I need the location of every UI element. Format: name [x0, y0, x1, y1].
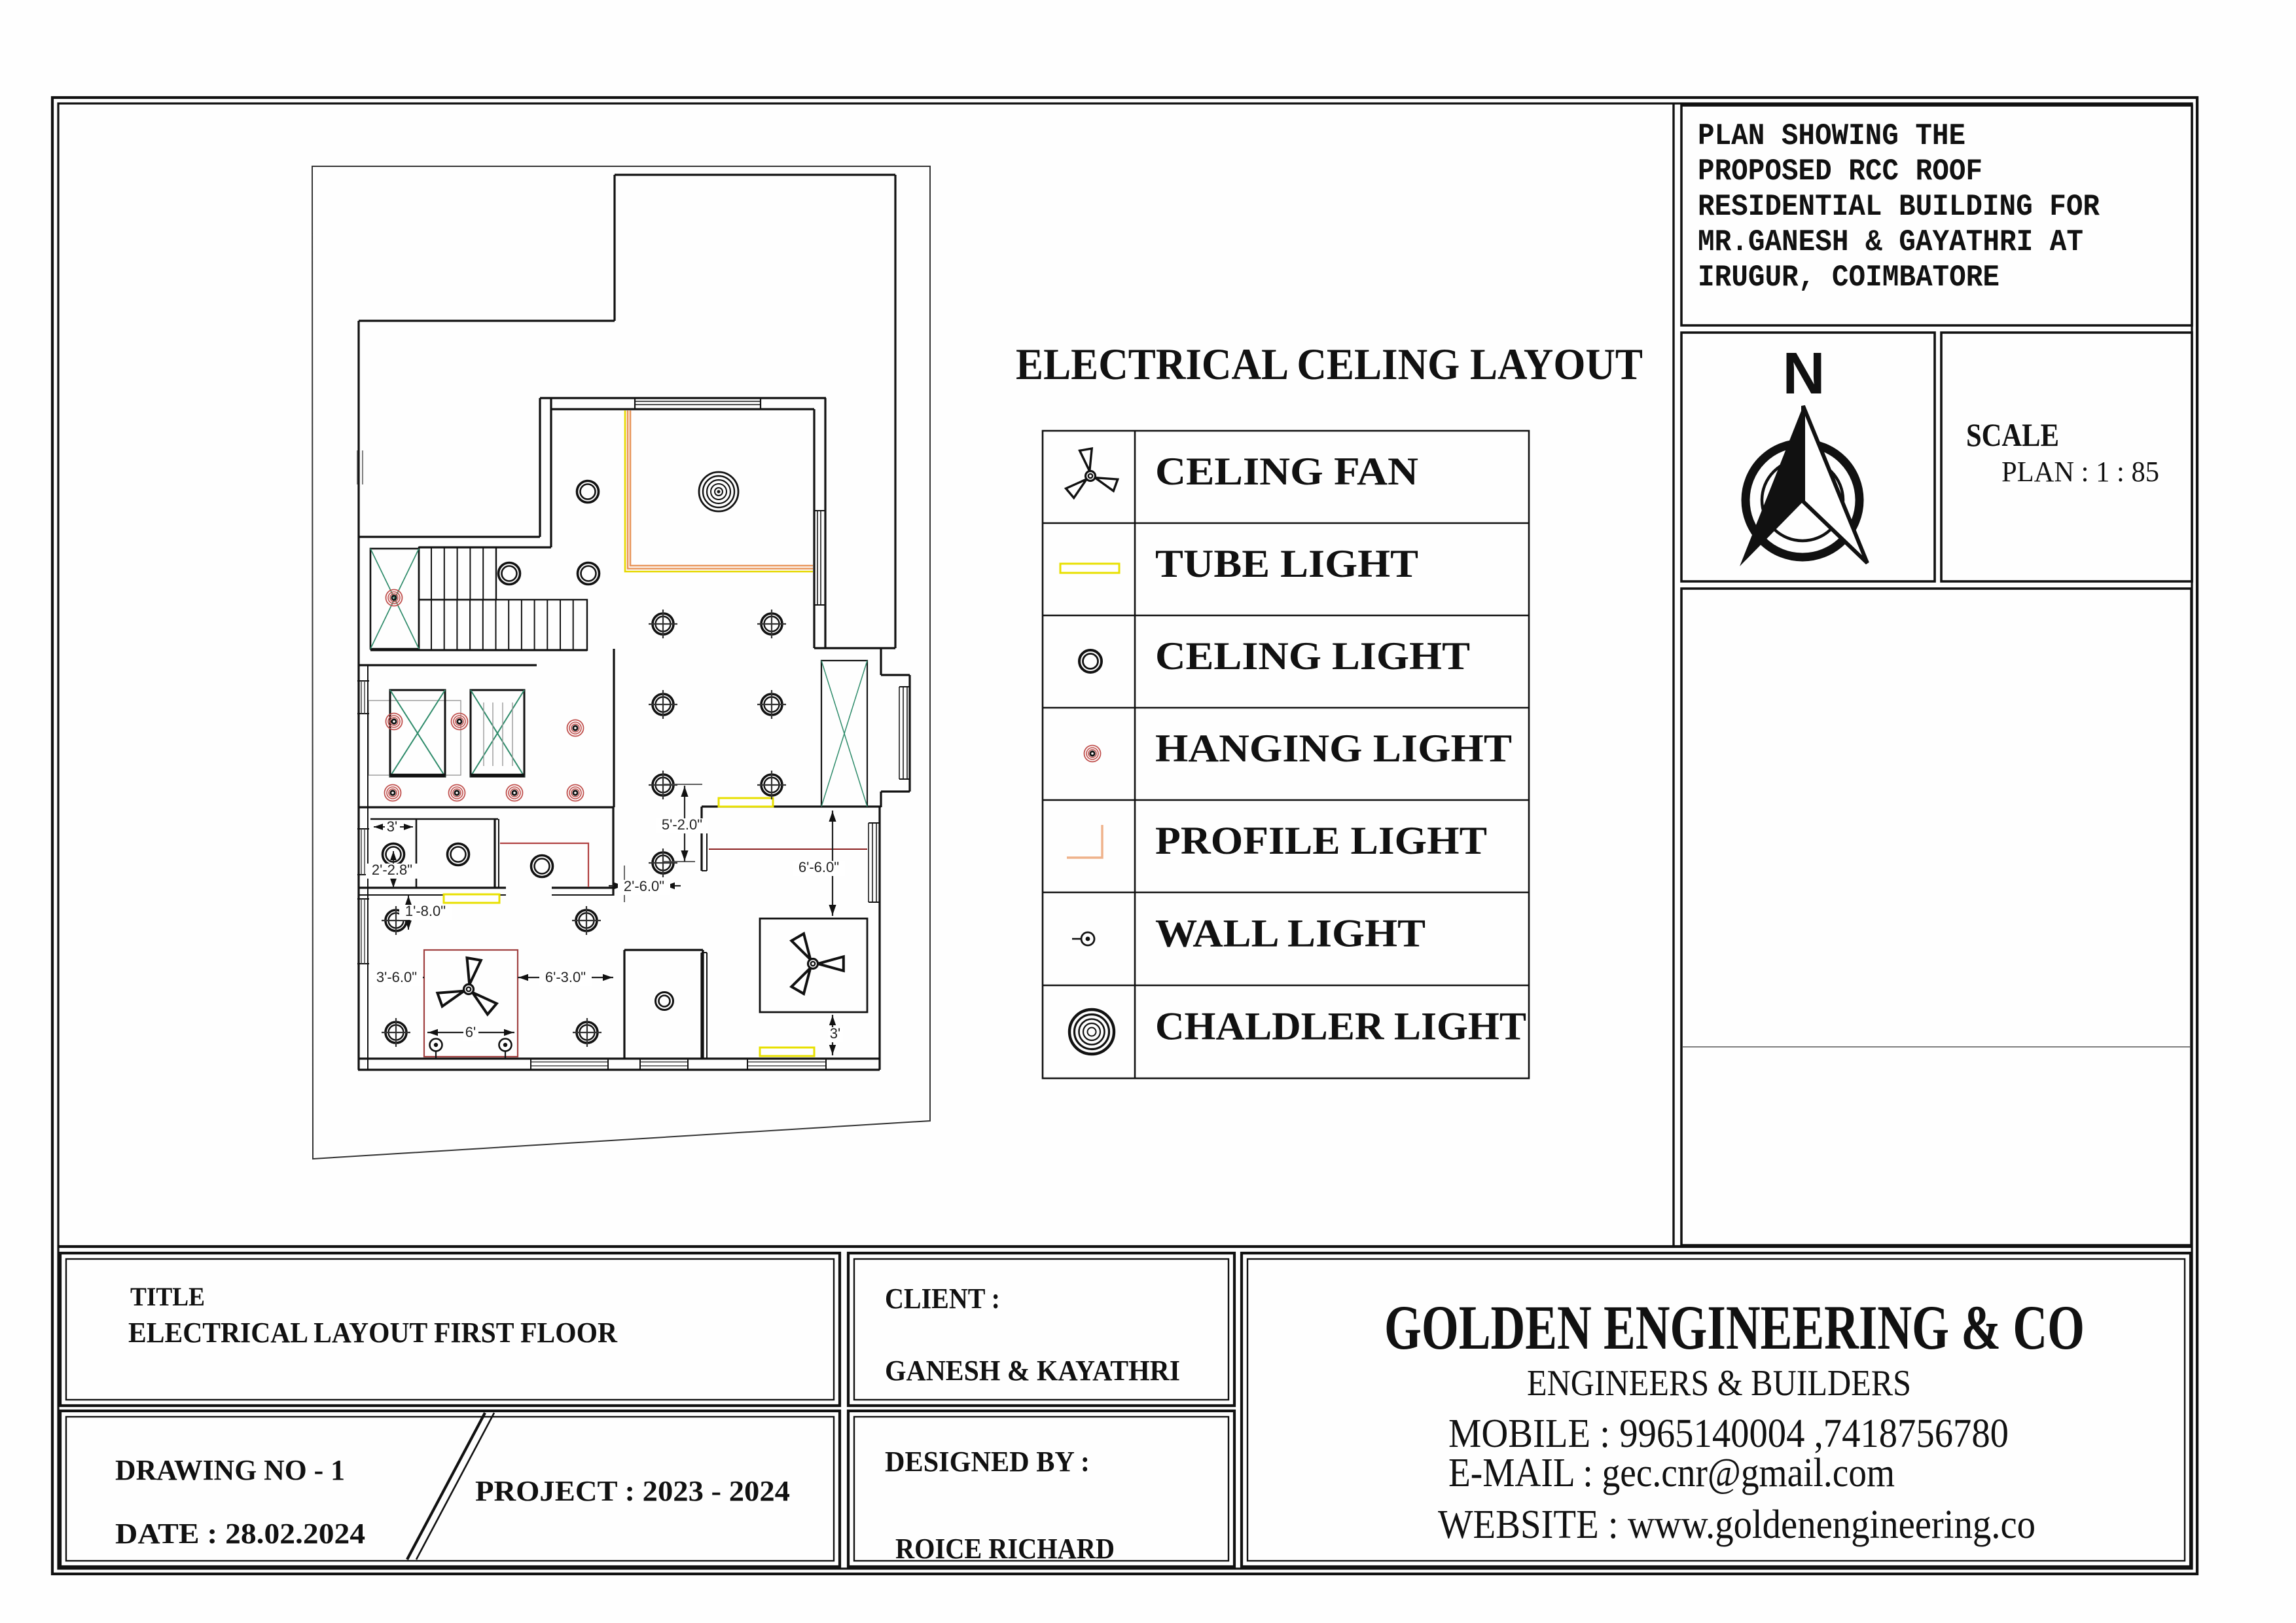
- svg-text:2'-2.8": 2'-2.8": [372, 862, 412, 878]
- svg-text:TUBE LIGHT: TUBE LIGHT: [1155, 542, 1418, 585]
- svg-text:ELECTRICAL CELING LAYOUT: ELECTRICAL CELING LAYOUT: [1016, 339, 1643, 389]
- svg-text:6'-3.0": 6'-3.0": [545, 969, 586, 985]
- svg-text:GANESH & KAYATHRI: GANESH & KAYATHRI: [885, 1355, 1180, 1387]
- svg-text:N: N: [1783, 341, 1825, 407]
- svg-text:DRAWING NO - 1: DRAWING NO - 1: [115, 1454, 345, 1486]
- svg-text:SCALE: SCALE: [1966, 416, 2059, 453]
- svg-text:3'-6.0": 3'-6.0": [376, 969, 417, 985]
- svg-text:ENGINEERS & BUILDERS: ENGINEERS & BUILDERS: [1527, 1363, 1911, 1404]
- svg-text:IRUGUR, COIMBATORE: IRUGUR, COIMBATORE: [1698, 261, 2000, 295]
- svg-text:GOLDEN ENGINEERING & CO: GOLDEN ENGINEERING & CO: [1384, 1292, 2085, 1362]
- svg-text:CELING FAN: CELING FAN: [1155, 450, 1418, 493]
- svg-text:ELECTRICAL LAYOUT FIRST FLOO: ELECTRICAL LAYOUT FIRST FLOOR: [128, 1317, 618, 1349]
- svg-text:6'-6.0": 6'-6.0": [798, 859, 839, 875]
- svg-text:WALL LIGHT: WALL LIGHT: [1155, 912, 1426, 955]
- svg-text:PROPOSED RCC ROOF: PROPOSED RCC ROOF: [1698, 155, 1982, 189]
- svg-text:PROFILE LIGHT: PROFILE LIGHT: [1155, 819, 1487, 862]
- svg-text:ROICE RICHARD: ROICE RICHARD: [895, 1533, 1115, 1565]
- svg-text:PLAN SHOWING THE: PLAN SHOWING THE: [1698, 119, 1965, 153]
- svg-text:6': 6': [465, 1024, 476, 1040]
- svg-text:WEBSITE : www.goldenengineerin: WEBSITE : www.goldenengineering.co: [1438, 1503, 2036, 1547]
- svg-text:3': 3': [387, 818, 397, 835]
- svg-text:CHALDLER LIGHT: CHALDLER LIGHT: [1155, 1005, 1526, 1048]
- svg-text:5'-2.0": 5'-2.0": [662, 816, 702, 833]
- svg-text:HANGING LIGHT: HANGING LIGHT: [1155, 727, 1512, 770]
- svg-text:1'-8.0": 1'-8.0": [405, 903, 446, 919]
- svg-text:3': 3': [830, 1025, 840, 1042]
- svg-text:DESIGNED BY :: DESIGNED BY :: [885, 1446, 1090, 1478]
- svg-text:PLAN : 1 : 85: PLAN : 1 : 85: [2001, 456, 2159, 488]
- svg-text:MOBILE : 9965140004 ,741875678: MOBILE : 9965140004 ,7418756780: [1448, 1412, 2009, 1456]
- svg-text:MR.GANESH & GAYATHRI AT: MR.GANESH & GAYATHRI AT: [1698, 225, 2083, 259]
- svg-text:DATE : 28.02.2024: DATE : 28.02.2024: [115, 1518, 365, 1550]
- svg-text:2'-6.0": 2'-6.0": [624, 878, 664, 894]
- svg-text:RESIDENTIAL BUILDING FOR: RESIDENTIAL BUILDING FOR: [1698, 190, 2100, 224]
- svg-text:CLIENT :: CLIENT :: [885, 1283, 1000, 1315]
- svg-text:TITLE: TITLE: [130, 1282, 205, 1311]
- svg-text:PROJECT : 2023 - 2024: PROJECT : 2023 - 2024: [475, 1475, 790, 1507]
- svg-text:E-MAIL : gec.cnr@gmail.com: E-MAIL : gec.cnr@gmail.com: [1448, 1451, 1895, 1495]
- svg-text:CELING LIGHT: CELING LIGHT: [1155, 634, 1470, 678]
